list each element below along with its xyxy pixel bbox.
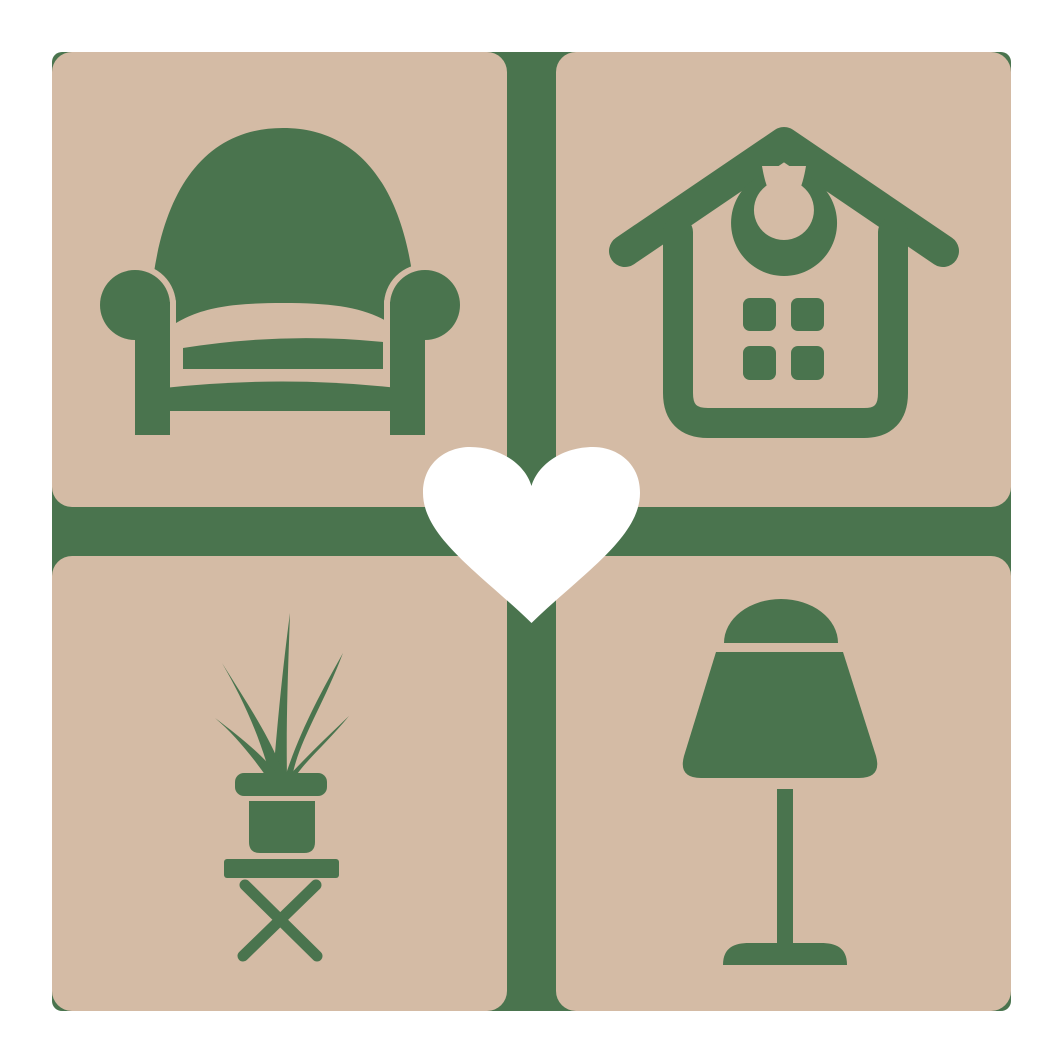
tile-top-left [52, 52, 507, 507]
heart-icon [423, 447, 640, 623]
table-lamp-icon [556, 556, 1011, 1011]
tile-top-right [556, 52, 1011, 507]
tile-bottom-left [52, 556, 507, 1011]
logo-canvas [0, 0, 1063, 1063]
house-icon [556, 52, 1011, 507]
armchair-icon [52, 52, 507, 507]
tile-bottom-right [556, 556, 1011, 1011]
potted-plant-icon [52, 556, 507, 1011]
